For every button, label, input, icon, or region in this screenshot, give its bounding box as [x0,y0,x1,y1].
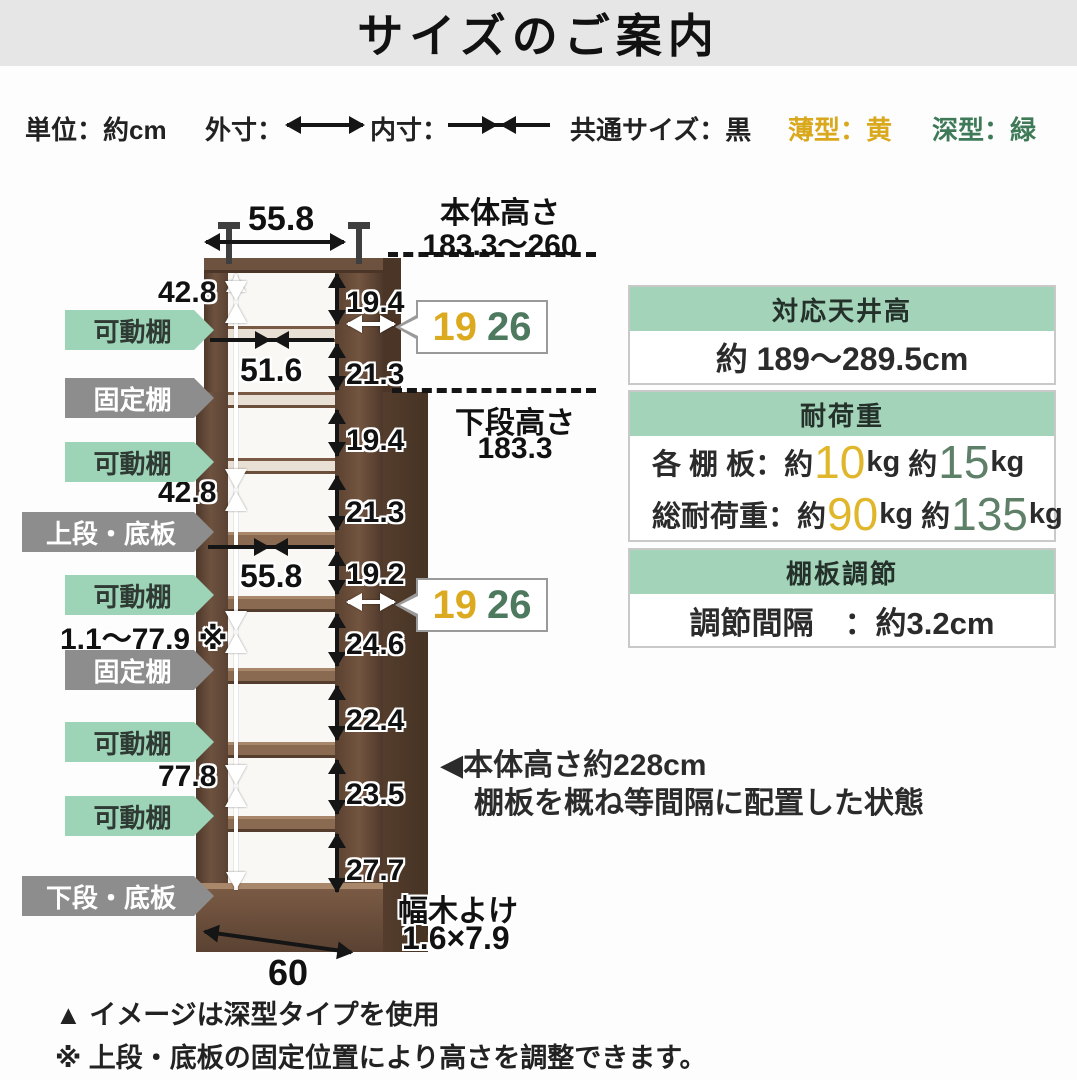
page-title: サイズのご案内 [0,0,1077,66]
depth-deep-value: 26 [487,305,532,350]
total-thin-kg: 90 [827,491,878,537]
legend-deep-type: 深型：緑 [932,110,1036,147]
shelf-tag-movable-4: 可動棚 [65,722,214,762]
top-width-value: 55.8 [248,200,314,239]
inner-height-1: 21.3 [346,358,404,392]
shelf-adjust-box: 棚板調節 調節間隔 ：約3.2cm [628,548,1056,648]
height-measure-arrow [335,410,339,456]
shelf-tag-lower-bottom: 下段・底板 [22,876,214,916]
inner-dimension-arrow-icon [448,123,550,127]
shelf-tag-movable-3: 可動棚 [65,575,214,615]
tension-bolt-icon [226,228,232,264]
bottom-width-value: 60 [268,952,308,994]
shelf-tag-movable-1: 可動棚 [65,310,214,350]
shelf-tag-fixed-1: 固定棚 [65,378,214,418]
body-height-value: 183.3〜260 [405,220,595,264]
legend-outer-label: 外寸： [205,110,283,147]
shelf-tag-fixed-2: 固定棚 [65,650,214,690]
load-row-total: 総耐荷重：約90kg 約135kg [630,488,1054,540]
height-measure-arrow [335,344,339,390]
height-measure-arrow [335,834,339,892]
inner-height-2: 19.4 [346,424,404,458]
left-lower-range-value: 77.8 [158,760,216,794]
load-capacity-header: 耐荷重 [630,392,1054,436]
load-row-per-shelf: 各 棚 板：約10kg 約15kg [630,436,1054,488]
legend-common-size: 共通サイズ：黒 [570,110,751,147]
ceiling-height-header: 対応天井高 [630,287,1054,331]
lower-height-dashed-line [392,388,596,393]
ceiling-height-box: 対応天井高 約 189〜289.5cm [628,285,1056,385]
depth-thin-value: 19 [433,305,478,350]
depth-pointer-arrow-icon [348,600,394,604]
note-image-type: ▲ イメージは深型タイプを使用 [55,993,440,1032]
legend-inner-label: 内寸： [370,110,448,147]
total-deep-kg: 135 [951,491,1028,537]
shelf-tag-movable-5: 可動棚 [65,796,214,836]
inner-height-6: 22.4 [346,704,404,738]
legend-unit: 単位：約cm [25,110,167,147]
note-height-adjust: ※ 上段・底板の固定位置により高さを調整できます。 [55,1036,707,1075]
upper-inner-width-value: 51.6 [240,352,302,389]
inner-height-8: 27.7 [346,854,404,888]
height-measure-arrow [335,760,339,814]
upper-inner-width-arrow [210,338,334,342]
inner-height-4: 19.2 [346,558,404,592]
depth-thin-value: 19 [433,583,478,628]
height-measure-arrow [335,614,339,666]
left-upper-range-value: 42.8 [158,276,216,310]
shelf-tag-movable-2: 可動棚 [65,442,214,482]
top-width-arrow [206,240,344,244]
size-guide-infographic: サイズのご案内 単位：約cm 外寸： 内寸： 共通サイズ：黒 薄型：黄 深型：緑 [0,0,1077,1080]
height-measure-arrow [335,274,339,324]
skirting-value: 1.6×7.9 [402,920,510,957]
shelf-adjust-header: 棚板調節 [630,550,1054,594]
height-measure-arrow [335,476,339,530]
annotation-line-2: 棚板を概ね等間隔に配置した状態 [474,778,924,822]
ceiling-height-value: 約 189〜289.5cm [630,331,1054,383]
range-arrow-down-icon [226,872,246,890]
mid-inner-width-arrow [208,545,334,549]
inner-height-5: 24.6 [346,628,404,662]
lower-height-value: 183.3 [440,432,590,466]
shelf-adjust-value: 調節間隔 ：約3.2cm [630,594,1054,646]
inner-height-7: 23.5 [346,778,404,812]
per-shelf-deep-kg: 15 [938,439,989,485]
depth-deep-value: 26 [487,583,532,628]
per-shelf-thin-kg: 10 [814,439,865,485]
outer-dimension-arrow-icon [287,123,363,127]
shelf-tag-upper-bottom: 上段・底板 [22,512,214,552]
height-measure-arrow [335,686,339,740]
height-measure-arrow [335,552,339,594]
load-capacity-box: 耐荷重 各 棚 板：約10kg 約15kg 総耐荷重：約90kg 約135kg [628,390,1056,542]
tension-bolt-icon [356,228,362,264]
depth-pointer-arrow-icon [348,322,394,326]
inner-height-3: 21.3 [346,496,404,530]
depth-callout-lower: 19 26 [416,578,548,632]
legend-thin-type: 薄型：黄 [788,110,892,147]
depth-callout-upper: 19 26 [416,300,548,354]
mid-inner-width-value: 55.8 [240,558,302,595]
